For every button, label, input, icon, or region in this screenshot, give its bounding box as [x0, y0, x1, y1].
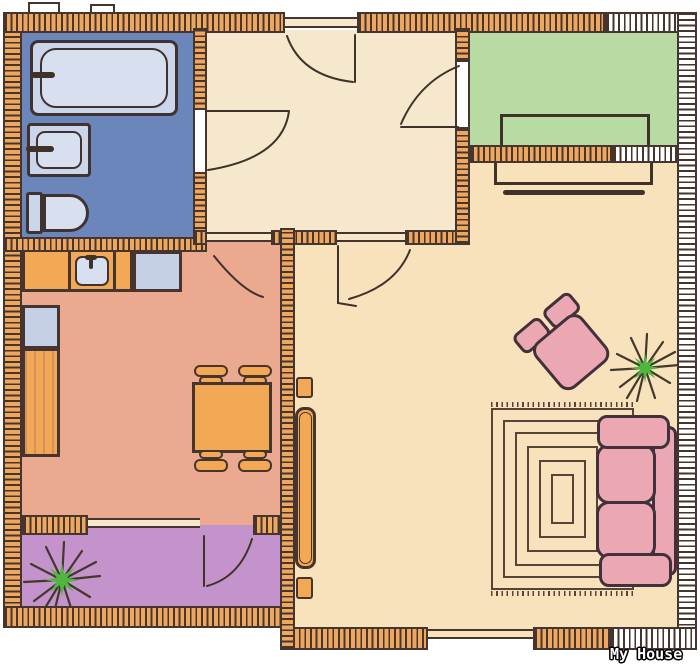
hallway-floor [203, 30, 457, 235]
kitchen-counter-left [22, 348, 60, 457]
window-sideboard [494, 163, 653, 185]
basin-faucet-icon [26, 146, 54, 152]
wall-kitchen-living [280, 228, 295, 650]
kitchen-counter-blue-top [133, 251, 182, 292]
wall-green-living [470, 145, 612, 163]
wall-right-exterior-window [677, 12, 697, 650]
green-balcony-door [455, 62, 470, 127]
wall-hall-green-upper [455, 28, 470, 62]
wall-bottom-living-a [280, 627, 428, 650]
wall-hall-corner [193, 230, 207, 245]
entry-door [285, 17, 357, 28]
rug-fringe [491, 591, 634, 596]
sideboard-shelf-line [503, 190, 645, 195]
wall-top-middle [357, 12, 605, 33]
wall-top-left [3, 12, 285, 33]
sofa-seat-cushion [596, 501, 656, 559]
floor-plan: My House [0, 0, 700, 668]
chair-back [238, 459, 272, 472]
toilet-tank [26, 192, 43, 234]
chair-back [194, 459, 228, 472]
sofa-armrest [597, 415, 670, 449]
bottom-window [428, 629, 533, 639]
bathtub-faucet-icon [31, 72, 55, 78]
kitchen-door [207, 232, 271, 242]
plant-icon [607, 330, 683, 406]
wall-bathroom-hall-upper [193, 28, 207, 112]
tv-unit-knob [296, 377, 313, 398]
wall-hall-bottom-b [405, 230, 457, 245]
chair-seat [199, 450, 223, 459]
tv-unit-inner-line [299, 412, 312, 564]
wall-purple-top-a [22, 515, 88, 535]
tv-unit-knob [296, 577, 313, 599]
wall-bottom-balcony [3, 606, 295, 628]
wall-hall-green-lower [455, 127, 470, 245]
purple-balcony-window [88, 518, 200, 528]
bathroom-door [193, 110, 207, 172]
chair-seat [243, 450, 267, 459]
kitchen-faucet-spout [89, 257, 93, 269]
dining-table [192, 382, 272, 453]
wall-purple-top-b [253, 515, 280, 535]
wall-bathroom-kitchen [3, 237, 207, 252]
sofa-armrest [599, 553, 672, 587]
wall-left-exterior [3, 12, 22, 628]
wall-green-living-window [612, 145, 677, 163]
page-title: My House [610, 645, 682, 663]
sofa-seat-cushion [596, 444, 656, 504]
kitchen-counter-blue-left [22, 305, 60, 349]
bathtub-inner-rim [40, 48, 168, 108]
wall-bottom-living-b [533, 627, 610, 650]
living-room-door [337, 232, 405, 242]
rug-ring [551, 474, 574, 524]
toilet-bowl [43, 194, 89, 232]
